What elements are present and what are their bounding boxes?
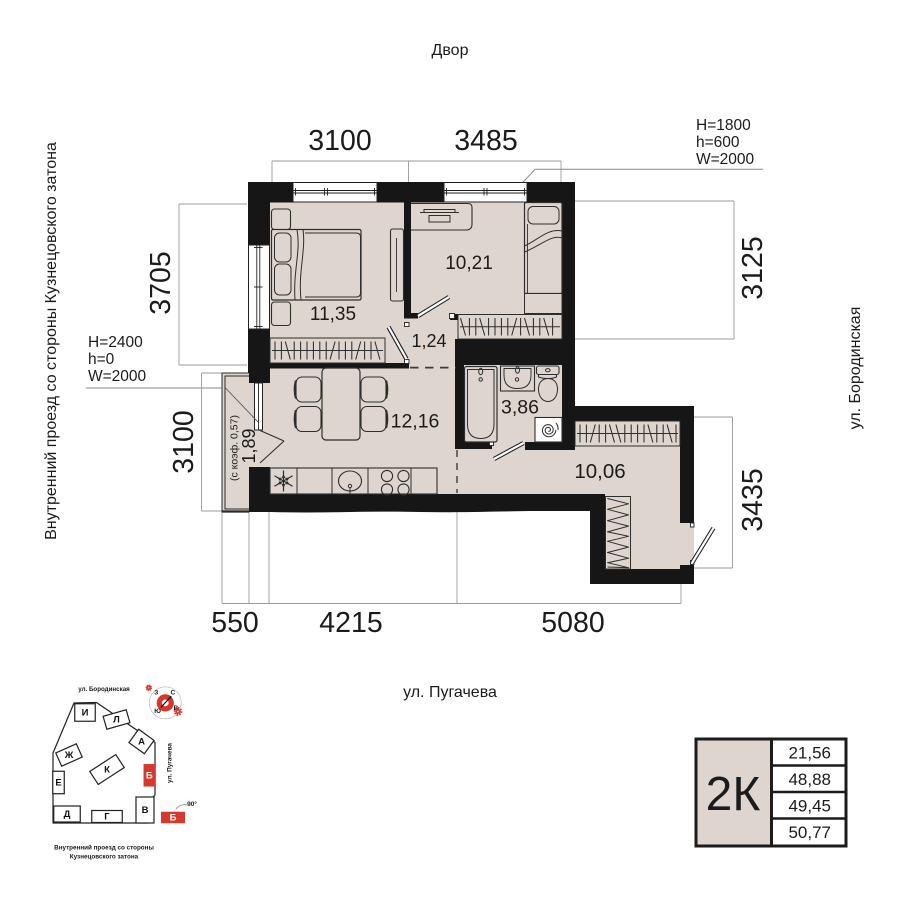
svg-text:С: С (170, 689, 175, 696)
svg-text:Ж: Ж (64, 750, 74, 761)
svg-text:W=2000: W=2000 (696, 151, 755, 168)
svg-text:Двор: Двор (432, 42, 469, 59)
svg-text:90°: 90° (187, 800, 197, 808)
svg-text:4215: 4215 (319, 607, 382, 639)
svg-text:1,24: 1,24 (411, 331, 446, 351)
svg-text:3705: 3705 (145, 251, 177, 314)
svg-text:10,21: 10,21 (445, 253, 493, 274)
svg-text:Внутренний проезд со стороны К: Внутренний проезд со стороны Кузнецовско… (43, 142, 60, 540)
svg-text:48,88: 48,88 (788, 770, 831, 789)
svg-text:W=2000: W=2000 (88, 368, 147, 385)
svg-text:49,45: 49,45 (788, 797, 831, 816)
svg-text:3100: 3100 (308, 125, 371, 157)
svg-text:Г: Г (104, 812, 110, 823)
svg-text:3485: 3485 (454, 125, 517, 157)
svg-text:21,56: 21,56 (788, 744, 831, 763)
svg-text:3435: 3435 (737, 468, 769, 531)
svg-text:11,35: 11,35 (310, 304, 356, 325)
svg-text:3125: 3125 (737, 236, 769, 299)
svg-text:12,16: 12,16 (391, 411, 440, 433)
svg-text:50,77: 50,77 (788, 823, 831, 842)
svg-text:1,89: 1,89 (239, 428, 259, 463)
svg-text:Внутренний проезд со стороны: Внутренний проезд со стороны (54, 844, 154, 852)
svg-text:3,86: 3,86 (501, 397, 539, 419)
svg-text:550: 550 (211, 607, 259, 639)
svg-text:Кузнецовского затона: Кузнецовского затона (70, 854, 139, 861)
svg-text:В: В (142, 805, 149, 816)
svg-text:К: К (104, 765, 110, 776)
svg-text:А: А (138, 737, 145, 748)
svg-text:Б: Б (146, 771, 153, 782)
svg-text:H=1800: H=1800 (696, 117, 751, 134)
svg-text:И: И (82, 708, 89, 719)
svg-text:ул. Пугачева: ул. Пугачева (403, 684, 497, 701)
svg-text:Д: Д (64, 809, 71, 820)
svg-text:h=0: h=0 (88, 351, 115, 368)
svg-text:5080: 5080 (541, 607, 604, 639)
svg-text:Б: Б (170, 813, 177, 824)
svg-text:h=600: h=600 (696, 134, 740, 151)
svg-text:10,06: 10,06 (574, 460, 625, 483)
svg-text:Л: Л (113, 715, 120, 726)
svg-text:2К: 2К (706, 768, 761, 821)
svg-text:ул. Бородинская: ул. Бородинская (78, 686, 130, 693)
svg-text:H=2400: H=2400 (88, 334, 143, 351)
svg-text:Ю: Ю (154, 708, 161, 715)
svg-text:3100: 3100 (168, 410, 200, 473)
svg-text:Е: Е (55, 778, 61, 789)
svg-text:ул. Пугачева: ул. Пугачева (167, 743, 174, 783)
svg-text:З: З (154, 689, 158, 696)
svg-text:ул. Бородинская: ул. Бородинская (847, 307, 864, 430)
